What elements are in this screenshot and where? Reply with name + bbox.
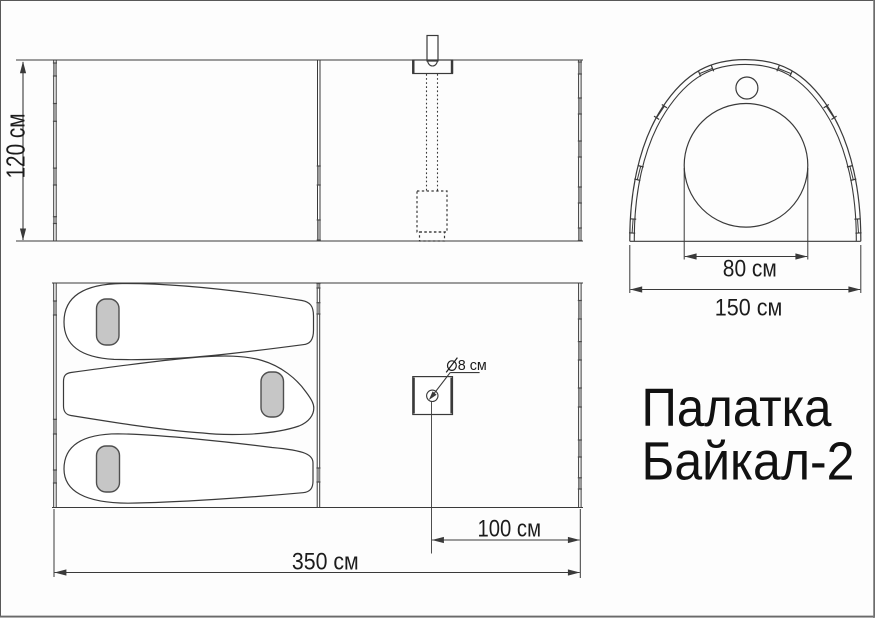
svg-text:Палатка: Палатка — [642, 378, 833, 438]
svg-text:80 см: 80 см — [723, 256, 777, 283]
svg-text:100 см: 100 см — [478, 516, 542, 543]
svg-text:120 см: 120 см — [3, 114, 31, 179]
svg-text:150 см: 150 см — [715, 295, 783, 322]
svg-text:Байкал-2: Байкал-2 — [642, 432, 855, 492]
svg-text:8 см: 8 см — [458, 357, 487, 374]
svg-text:350 см: 350 см — [292, 549, 359, 576]
